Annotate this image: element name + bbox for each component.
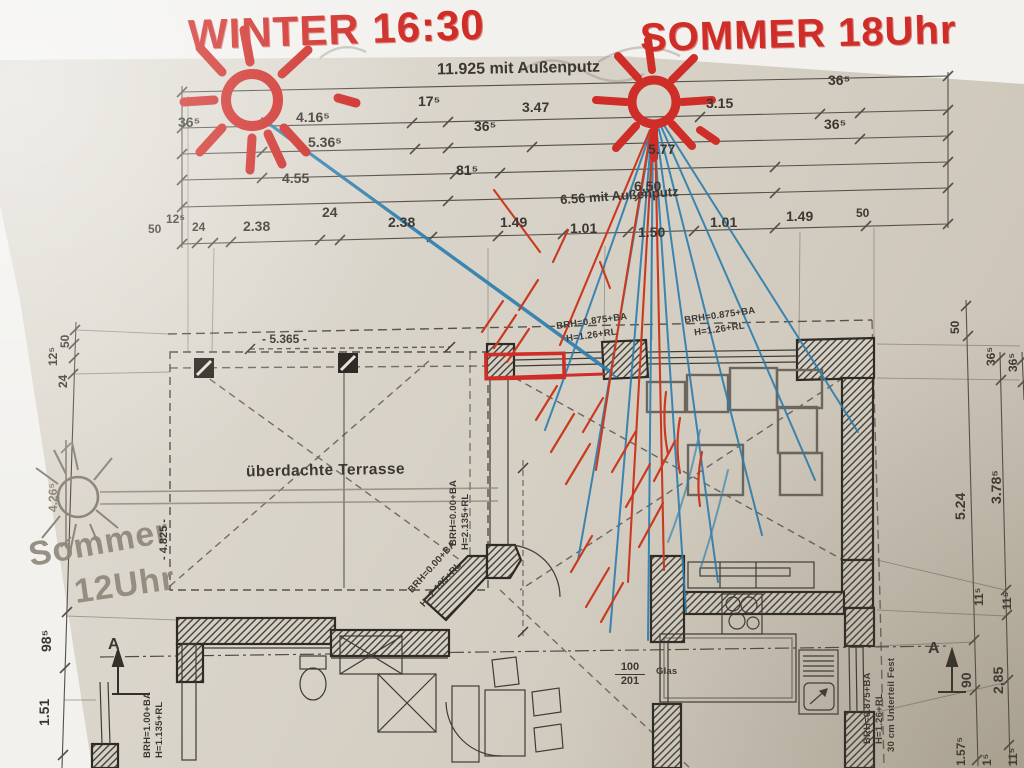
door1-note-line2: H=2.135+RL [460,494,471,550]
terrace-posts [194,353,358,378]
chain-dim: 24 [322,204,338,220]
right-dim-285: 2.85 [990,667,1006,694]
left-dim-50: 50 [58,335,72,348]
dim-315: 3.15 [706,95,733,111]
dim-36-right: 36⁵ [824,116,846,132]
right-dim-50: 50 [948,321,962,334]
glas-label: Glas [656,666,677,677]
right-dim-90: 90 [958,672,974,688]
chain-dim: 12⁵ [166,212,185,226]
door1-note-line1: BRH=0.00+BA [448,480,459,546]
plan-detail-lines [100,342,864,762]
section-line [100,646,966,694]
right-dim-1b: 11⁵ [1006,748,1020,766]
chain-dim: 1.50 [638,224,665,240]
dim-17: 17⁵ [418,93,440,109]
dim-455: 4.55 [282,170,309,186]
right-dimension-lines [877,300,1024,766]
dim-36-mid: 36⁵ [474,118,496,134]
terrace-width-dim: - 5.365 - [262,332,307,346]
dim-577: 5.77 [648,141,675,157]
left-dim-151: 1.51 [36,699,52,726]
kitchen-window-note-line1: BRH=0.875+BA [862,672,873,744]
opening-width: 100 [621,661,639,673]
chain-dim: 2.38 [388,214,415,230]
dim-416: 4.16⁵ [296,109,330,125]
right-dim-378: 3.78⁵ [988,470,1004,504]
chain-dim: 1.49 [786,208,813,224]
floor-plan-linework [0,0,1024,768]
bath-window-note-line2: H=1.135+RL [154,702,165,758]
terrace-depth-dim: - 4.825 - [158,519,170,560]
top-dimension-lines [177,71,953,352]
dim-536: 5.36⁵ [308,134,342,150]
right-dim-11b: 11⁵ [1000,592,1014,610]
dim-347: 3.47 [522,99,549,115]
dim-81: 81⁵ [456,162,478,178]
photo-of-floor-plan: WINTER 16:30 SOMMER 18Uhr Sommer 12Uhr 1… [0,0,1024,768]
section-marker-a-right: A [928,640,940,658]
chain-dim: 1.01 [570,220,597,236]
right-dim-36a: 36⁵ [984,347,998,366]
left-dim-426-pencil: 4.26⁵ [46,483,60,512]
dim-36-top-right: 36⁵ [828,72,850,88]
right-dim-11a: 11⁵ [972,588,986,606]
section-marker-a-left: A [108,636,120,654]
left-dim-12: 12⁵ [46,347,60,366]
opening-height: 201 [615,674,645,687]
walls [92,338,874,768]
right-dim-157: 1.57⁵ [954,737,968,766]
chain-dim: 24 [192,220,205,234]
chain-dim: 1.01 [710,214,737,230]
chain-dim: 50 [856,206,869,220]
right-dim-36b: 36⁵ [1006,353,1020,372]
opening-size-fraction: 100 201 [615,662,645,687]
kitchen-window-note-line3: 30 cm Unterteil Fest [886,658,897,752]
summer-time-annotation: SOMMER 18Uhr [639,8,957,61]
terrace-label: überdachte Terrasse [246,461,405,482]
chain-dim: 2.38 [243,218,270,234]
left-dim-24: 24 [56,375,70,388]
left-dim-98: 98⁵ [38,630,54,652]
chain-dim: 50 [148,222,161,236]
right-dim-524: 5.24 [952,493,968,520]
right-dim-1a: 1⁵ [980,754,994,766]
chain-dim: 1.49 [500,214,527,230]
dim-total-width: 11.925 mit Außenputz [437,59,600,80]
bath-window-note-line1: BRH=1.00+BA [142,692,153,758]
dim-36-left: 36⁵ [178,114,200,130]
kitchen-window-note-line2: H=1.26+RL [874,693,885,744]
